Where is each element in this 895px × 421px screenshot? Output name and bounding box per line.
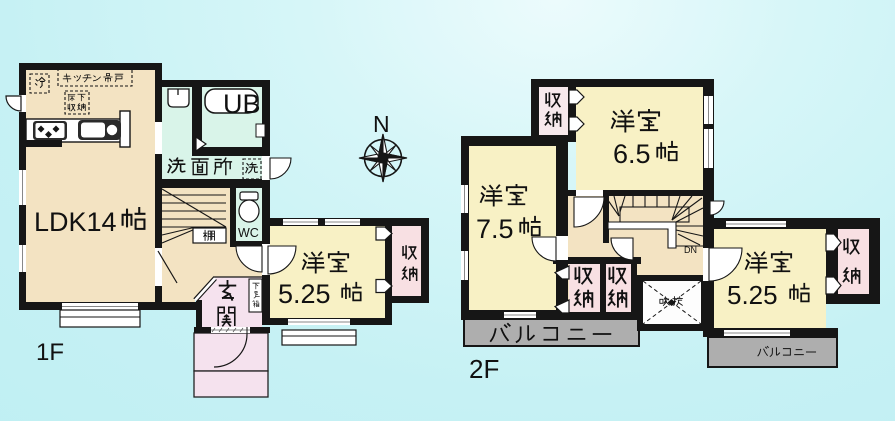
svg-text:LDK14: LDK14	[34, 207, 117, 237]
svg-text:5.25: 5.25	[278, 279, 331, 309]
svg-text:6.5: 6.5	[613, 139, 651, 169]
svg-text:2F: 2F	[469, 354, 499, 384]
svg-text:WC: WC	[238, 226, 259, 240]
svg-text:1F: 1F	[36, 339, 64, 366]
svg-text:UB: UB	[223, 89, 261, 119]
svg-text:7.5: 7.5	[476, 214, 514, 244]
svg-text:N: N	[373, 111, 390, 137]
svg-text:DN: DN	[684, 245, 697, 255]
svg-text:5.25: 5.25	[727, 280, 778, 310]
